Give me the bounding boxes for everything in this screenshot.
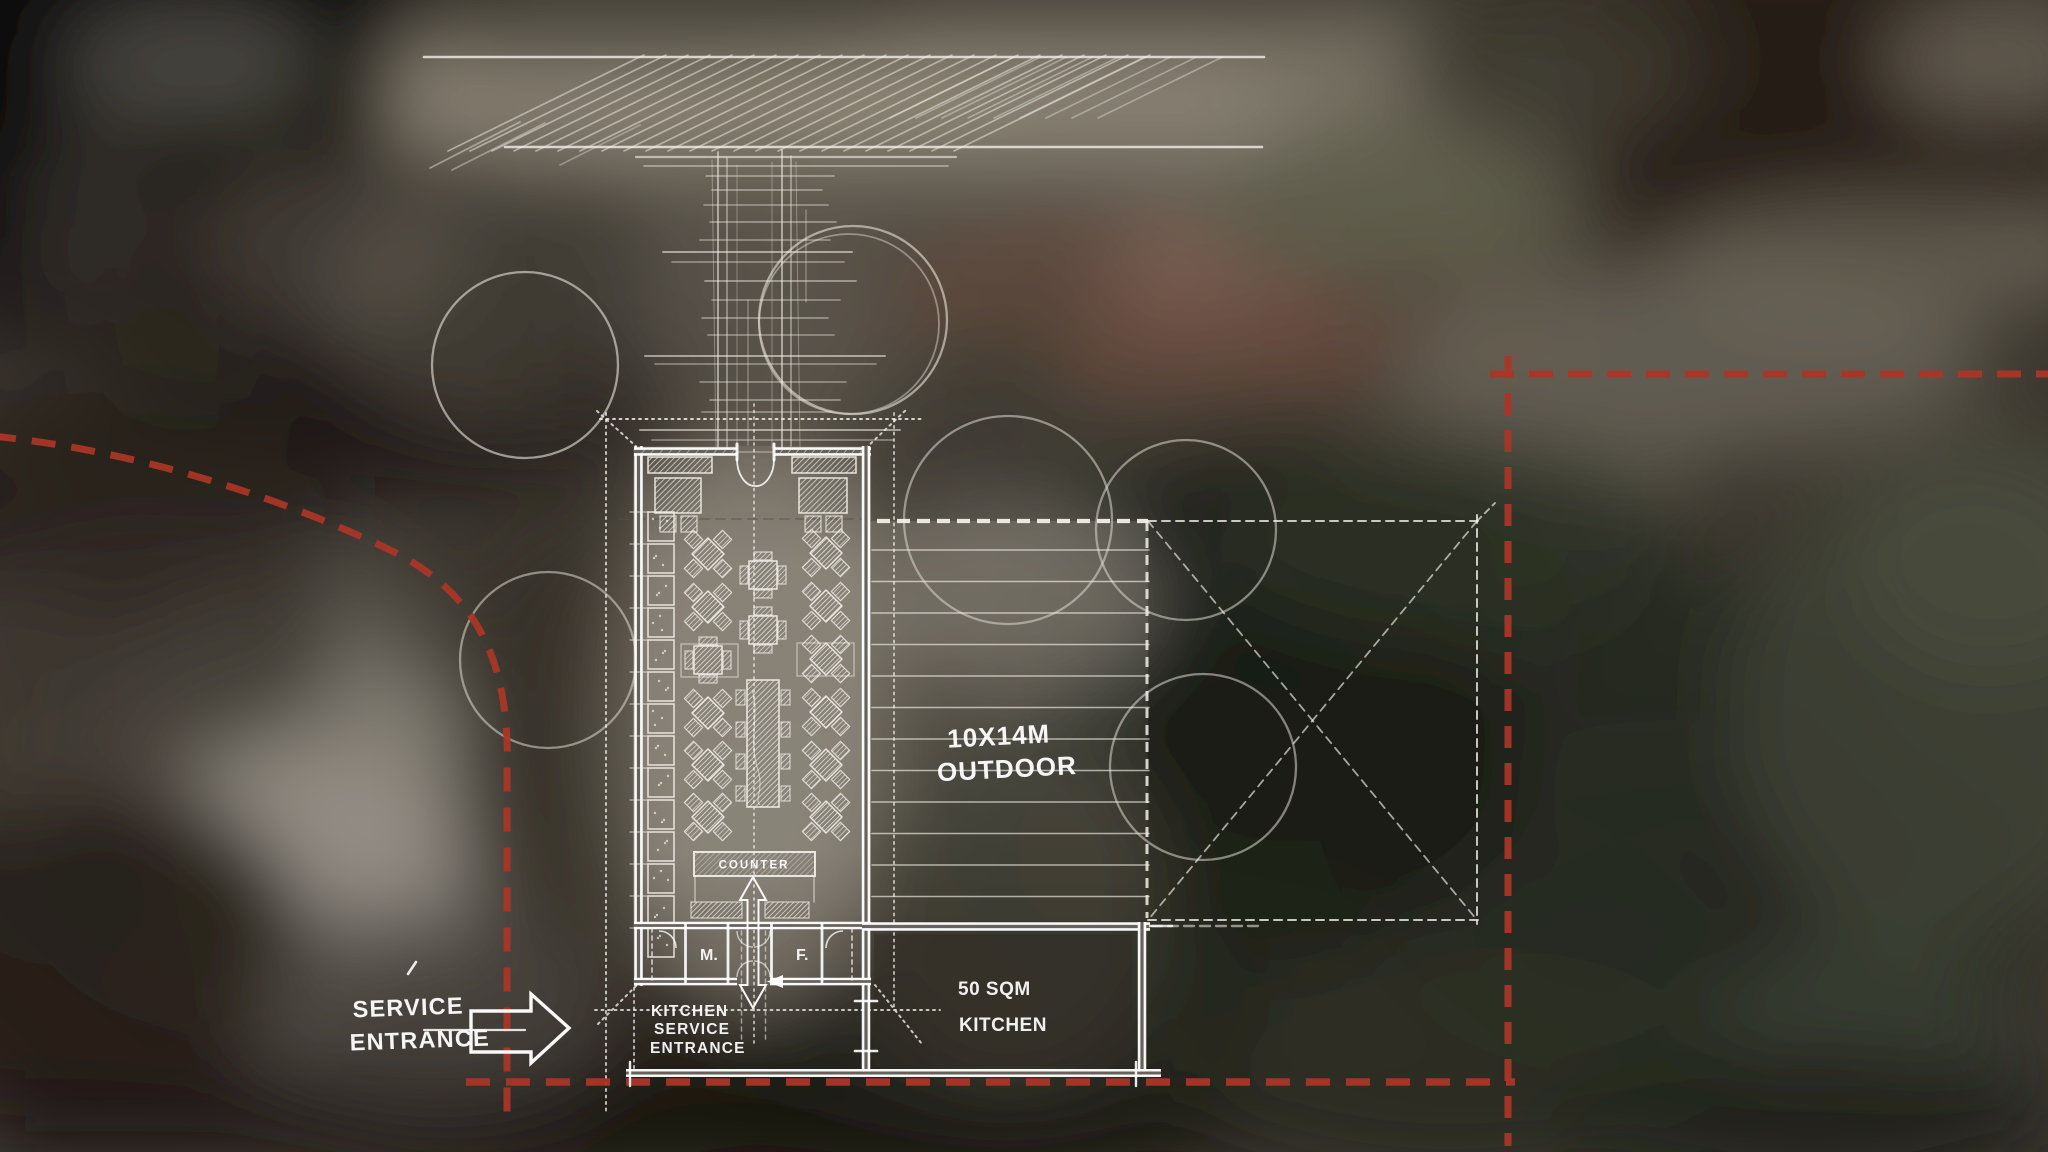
svg-text:KITCHEN: KITCHEN <box>959 1015 1047 1036</box>
svg-text:COUNTER: COUNTER <box>719 860 790 872</box>
svg-text:F.: F. <box>796 947 808 964</box>
svg-text:10X14M: 10X14M <box>947 718 1051 753</box>
svg-text:M.: M. <box>700 947 718 964</box>
svg-text:ENTRANCE: ENTRANCE <box>650 1040 746 1057</box>
svg-text:KITCHEN: KITCHEN <box>651 1003 728 1020</box>
svg-text:50 SQM: 50 SQM <box>958 979 1031 1000</box>
svg-text:SERVICE: SERVICE <box>352 992 464 1022</box>
svg-text:SERVICE: SERVICE <box>654 1021 730 1038</box>
